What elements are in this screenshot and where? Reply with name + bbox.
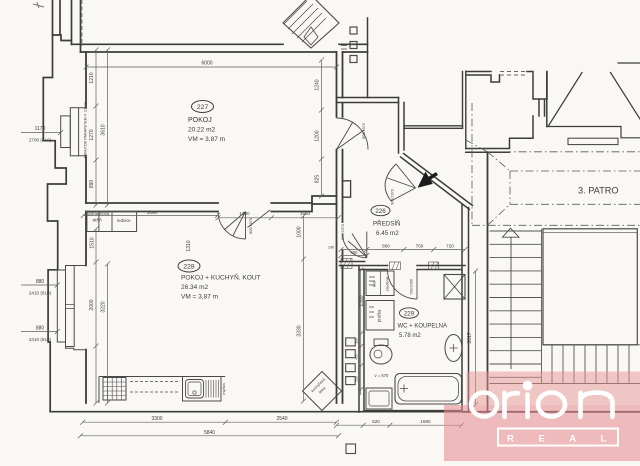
- svg-text:2000: 2000: [89, 299, 95, 310]
- svg-text:3017: 3017: [467, 332, 473, 343]
- svg-text:3300: 3300: [151, 416, 162, 422]
- svg-text:20.22 m2: 20.22 m2: [188, 127, 215, 134]
- svg-text:825: 825: [315, 175, 321, 184]
- svg-text:1210: 1210: [89, 72, 95, 83]
- svg-text:300: 300: [355, 338, 359, 344]
- svg-text:2410 (810): 2410 (810): [29, 291, 52, 296]
- svg-text:450: 450: [351, 250, 359, 255]
- svg-text:v = 670: v = 670: [375, 373, 390, 378]
- svg-text:lednice: lednice: [117, 218, 131, 223]
- svg-text:450: 450: [355, 354, 359, 360]
- svg-text:3330: 3330: [297, 325, 303, 336]
- svg-text:700: 700: [416, 244, 424, 249]
- svg-text:6.45 m2: 6.45 m2: [376, 230, 399, 237]
- svg-text:700/2000: 700/2000: [410, 279, 414, 295]
- svg-text:2540: 2540: [276, 416, 287, 422]
- svg-text:WC + KOUPELNA: WC + KOUPELNA: [398, 324, 448, 330]
- svg-text:1550: 1550: [300, 211, 311, 216]
- svg-text:1310: 1310: [186, 240, 192, 251]
- svg-text:PŘEDSÍŇ: PŘEDSÍŇ: [373, 220, 401, 228]
- svg-text:800/1970: 800/1970: [249, 218, 253, 234]
- svg-text:6000: 6000: [201, 61, 212, 67]
- svg-text:550: 550: [355, 376, 359, 382]
- svg-text:potravinová: potravinová: [88, 211, 110, 216]
- svg-text:zásobník: zásobník: [386, 276, 390, 291]
- svg-text:1270: 1270: [89, 129, 95, 140]
- svg-text:3. PATRO: 3. PATRO: [578, 186, 619, 196]
- svg-text:3610: 3610: [101, 124, 107, 135]
- svg-text:26.34 m2: 26.34 m2: [181, 284, 208, 291]
- svg-text:1510: 1510: [90, 237, 96, 248]
- svg-text:226: 226: [375, 208, 386, 215]
- svg-text:1000: 1000: [297, 226, 303, 237]
- svg-text:720: 720: [446, 244, 454, 249]
- svg-text:5840: 5840: [204, 430, 215, 436]
- svg-text:1200: 1200: [315, 130, 321, 141]
- svg-text:620: 620: [372, 419, 380, 424]
- svg-text:VM = 3,87 m: VM = 3,87 m: [188, 136, 225, 143]
- svg-text:1680: 1680: [420, 419, 431, 424]
- svg-text:1200: 1200: [239, 211, 250, 216]
- svg-text:800/1970: 800/1970: [341, 224, 345, 240]
- svg-text:228: 228: [183, 264, 195, 271]
- svg-text:5.78 m2: 5.78 m2: [399, 333, 421, 339]
- svg-text:POKOJ: POKOJ: [188, 117, 212, 124]
- svg-text:POKOJ + KUCHYŇ. KOUT: POKOJ + KUCHYŇ. KOUT: [181, 273, 261, 282]
- svg-text:900/1970: 900/1970: [391, 189, 395, 205]
- svg-text:1390: 1390: [359, 295, 365, 306]
- svg-text:1170: 1170: [35, 126, 46, 132]
- svg-text:VM = 3,87 m: VM = 3,87 m: [181, 294, 218, 301]
- svg-text:800/1970: 800/1970: [362, 123, 366, 139]
- svg-text:REAL: REAL: [507, 434, 631, 445]
- svg-text:229: 229: [404, 310, 415, 317]
- svg-text:190: 190: [328, 245, 334, 249]
- svg-text:3090: 3090: [147, 210, 158, 215]
- svg-text:2410 (810): 2410 (810): [29, 337, 52, 342]
- svg-text:NIKA POD PARAPETEM V. 27 cm: NIKA POD PARAPETEM V. 27 cm: [84, 102, 88, 158]
- svg-text:2700 (810): 2700 (810): [29, 138, 52, 143]
- svg-text:myčka: myčka: [221, 382, 226, 394]
- svg-text:227: 227: [197, 104, 209, 111]
- svg-text:880: 880: [36, 279, 45, 285]
- svg-text:1240: 1240: [315, 79, 321, 90]
- svg-text:890: 890: [89, 180, 95, 189]
- svg-text:3220: 3220: [101, 301, 107, 312]
- svg-text:860: 860: [382, 244, 390, 249]
- svg-text:880: 880: [36, 326, 45, 332]
- svg-text:pračka: pračka: [377, 309, 382, 322]
- svg-text:skříň: skříň: [92, 218, 102, 223]
- svg-text:koš: koš: [373, 281, 377, 287]
